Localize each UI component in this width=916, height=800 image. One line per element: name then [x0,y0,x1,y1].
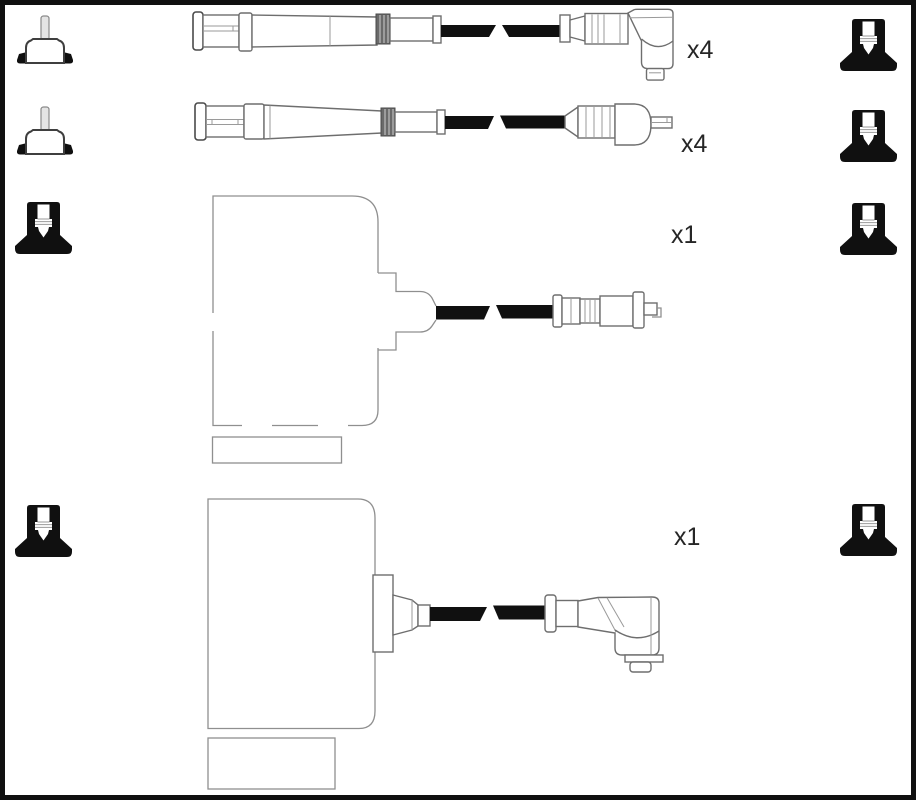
ribbed-ring [376,14,390,44]
cable [445,116,565,130]
mounting-bracket [208,738,335,789]
spark-plug-boot-icon [840,19,897,71]
quantity-label: x4 [687,36,714,64]
ignition-lead-straight [195,103,672,145]
terminal-end-cap [193,12,252,51]
coil-unit-with-lead [213,196,662,463]
coil-output-nozzle [373,575,430,652]
quantity-label: x1 [674,523,700,551]
lead-body [252,15,377,47]
quantity-label: x4 [681,130,708,158]
coil-housing [208,499,375,789]
ribbed-ring [381,108,395,136]
coil-terminal-icon [17,107,73,155]
spark-plug-boot-icon [840,110,897,162]
coil-output-nozzle [378,273,436,350]
spark-plug-boot-icon [840,203,897,255]
lead-sleeve [395,110,445,134]
lead-sleeve [390,16,441,43]
terminal-end-cap [195,103,264,140]
angled-plug-boot [560,9,673,80]
cable [436,305,553,320]
quantity-label: x1 [671,221,697,249]
straight-connector [553,292,661,328]
straight-plug-connector [565,104,672,145]
coil-terminal-icon [17,16,73,64]
coil-housing [213,196,379,463]
spark-plug-boot-icon [15,202,72,254]
spark-plug-boot-icon [15,505,72,557]
cable [430,606,545,622]
mounting-bracket [213,437,342,463]
ignition-lead-kit-diagram: x4 [0,0,916,800]
angled-plug-boot [545,595,663,672]
ignition-lead-angled [193,9,673,80]
lead-body [264,105,382,139]
spark-plug-boot-icon [840,504,897,556]
cable [441,25,560,37]
coil-unit-with-angled-lead [208,499,663,789]
